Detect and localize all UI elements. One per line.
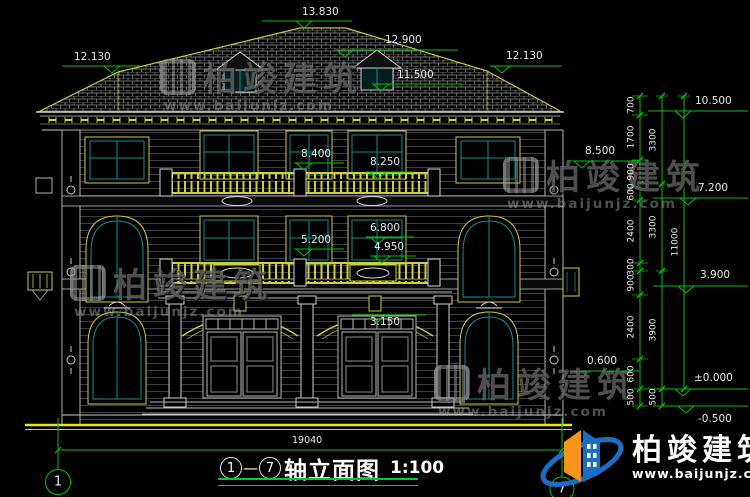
title-scale: 1:100 bbox=[390, 458, 444, 478]
dim-label-700: 700 bbox=[628, 96, 637, 113]
title-underline bbox=[218, 478, 418, 486]
elevation-label-4950: 4.950 bbox=[374, 242, 404, 253]
brand-logo: 柏竣建筑 www.baijunjz.com bbox=[536, 420, 750, 496]
dim-label-600a: 600 bbox=[628, 183, 637, 200]
dim-label-2400a: 2400 bbox=[628, 220, 637, 243]
watermark-url: www.baijunjz.com bbox=[438, 404, 637, 420]
elevation-label-8400: 8.400 bbox=[301, 149, 331, 160]
dim-label-3900: 3900 bbox=[650, 319, 659, 342]
brand-url: www.baijunjz.com bbox=[632, 466, 750, 481]
title-axis-start: 1 bbox=[220, 457, 242, 479]
dim-label-11000: 11000 bbox=[672, 228, 681, 257]
dim-label-900b: 900 bbox=[628, 274, 637, 291]
elevation-label-10500: 10.500 bbox=[695, 96, 732, 107]
dim-label-600b: 600 bbox=[628, 365, 637, 382]
title-axis-end: 7 bbox=[259, 457, 281, 479]
dim-label-300: 300 bbox=[628, 258, 637, 275]
watermark-logo-icon bbox=[503, 157, 539, 193]
watermark-top: 柏竣建筑 www.baijunjz.com bbox=[160, 52, 363, 114]
dim-label-500a: 500 bbox=[628, 388, 637, 405]
watermark-logo-icon bbox=[434, 365, 470, 401]
watermark-url: www.baijunjz.com bbox=[164, 98, 363, 114]
elevation-label-roof-right: 12.130 bbox=[506, 51, 543, 62]
dimension-chain-connectors bbox=[632, 96, 690, 406]
elevation-label-7200: 7.200 bbox=[698, 183, 728, 194]
elevation-label-6800: 6.800 bbox=[370, 223, 400, 234]
dim-label-3300b: 3300 bbox=[650, 216, 659, 239]
elevation-label-0600: 0.600 bbox=[587, 356, 617, 367]
dim-label-3300a: 3300 bbox=[650, 129, 659, 152]
cad-canvas: 13.830 12.130 12.900 11.500 12.130 8.400… bbox=[0, 0, 750, 497]
watermark-url: www.baijunjz.com bbox=[74, 304, 273, 320]
brand-logo-icon bbox=[536, 420, 628, 496]
brand-name: 柏竣建筑 bbox=[632, 435, 750, 467]
eave-cornice bbox=[36, 112, 564, 130]
axis-bubble-1: 1 bbox=[54, 475, 62, 490]
elevation-label-ridge: 13.830 bbox=[302, 7, 339, 18]
dim-label-500b: 500 bbox=[650, 388, 659, 405]
elevation-label-5200: 5.200 bbox=[301, 235, 331, 246]
overall-width-label: 19040 bbox=[292, 436, 322, 446]
elevation-label-dormer-base: 11.500 bbox=[397, 70, 434, 81]
elevation-label-8250: 8.250 bbox=[370, 157, 400, 168]
watermark-logo-icon bbox=[160, 59, 196, 95]
elevation-label-3900: 3.900 bbox=[700, 270, 730, 281]
watermark-left: 柏竣建筑 www.baijunjz.com bbox=[70, 258, 273, 320]
elevation-label-3150: 3.150 bbox=[370, 317, 400, 328]
watermark-right: 柏竣建筑 www.baijunjz.com bbox=[503, 150, 706, 212]
watermark-brand: 柏竣建筑 bbox=[203, 52, 363, 101]
dim-label-1700: 1700 bbox=[628, 126, 637, 149]
dim-label-900a: 900 bbox=[628, 163, 637, 180]
dim-label-2400b: 2400 bbox=[628, 316, 637, 339]
watermark-logo-icon bbox=[70, 265, 106, 301]
elevation-label-8500: 8.500 bbox=[585, 146, 615, 157]
elevation-label-roof-left: 12.130 bbox=[74, 52, 111, 63]
elevation-label-ground: ±0.000 bbox=[694, 373, 733, 384]
title-dash: — bbox=[243, 459, 258, 477]
elevation-label-dormer-top: 12.900 bbox=[385, 35, 422, 46]
watermark-url: www.baijunjz.com bbox=[507, 196, 706, 212]
watermark-brand: 柏竣建筑 bbox=[113, 258, 273, 307]
watermark-bottom: 柏竣建筑 www.baijunjz.com bbox=[434, 358, 637, 420]
